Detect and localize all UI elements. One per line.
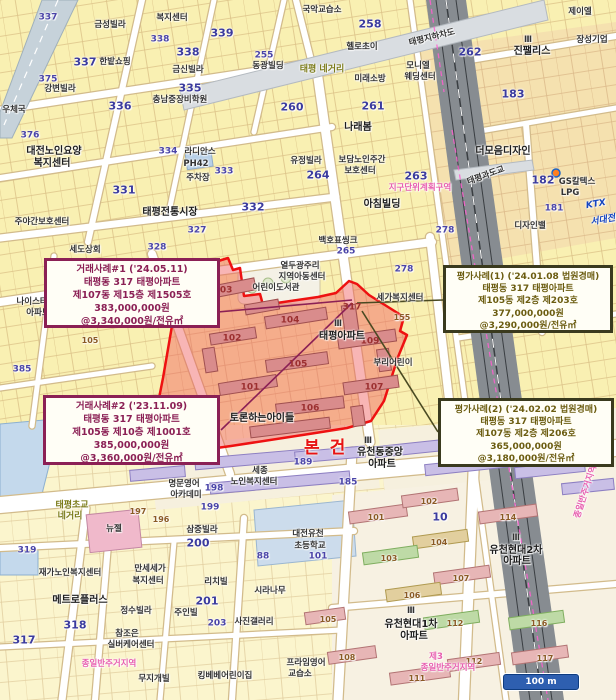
- callout-line: 태평동 317 태평아파트: [443, 416, 609, 428]
- callout-line: 377,000,000원: [448, 308, 608, 320]
- callout-line: 태평동 317 태평아파트: [49, 277, 215, 290]
- callout-sale-1: 거래사례#1 ('24.05.11) 태평동 317 태평아파트 제107동 제…: [44, 258, 220, 328]
- callout-line: 태평동 317 태평아파트: [448, 283, 608, 295]
- callout-sale-2: 거래사례#2 ('23.11.09) 태평동 317 태평아파트 제105동 제…: [43, 395, 220, 465]
- map-screenshot: 금성빌라337337338338339335336375강변빌라금신빌라한밭쇼핑…: [0, 0, 616, 700]
- scale-bar: 100 m: [503, 674, 579, 690]
- subject-label: 본건: [304, 433, 355, 458]
- callout-line: @3,290,000원/전유㎡: [448, 320, 608, 332]
- callout-appraisal-2: 평가사례(2) ('24.02.02 법원경매) 태평동 317 태평아파트 제…: [438, 398, 614, 467]
- callout-line: 383,000,000원: [49, 303, 215, 316]
- callout-line: @3,360,000원/전유㎡: [48, 453, 215, 466]
- callout-line: 태평동 317 태평아파트: [48, 414, 215, 427]
- callout-line: 거래사례#1 ('24.05.11): [49, 264, 215, 277]
- callout-line: 제107동 제2층 제206호: [443, 428, 609, 440]
- gs-station-icon: [552, 169, 560, 177]
- callout-line: 제105동 제2층 제203호: [448, 295, 608, 307]
- callout-line: 평가사례(1) ('24.01.08 법원경매): [448, 271, 608, 283]
- callout-line: 제107동 제15층 제1505호: [49, 290, 215, 303]
- map-canvas[interactable]: [0, 0, 616, 700]
- callout-line: 평가사례(2) ('24.02.02 법원경매): [443, 404, 609, 416]
- callout-line: 385,000,000원: [48, 440, 215, 453]
- callout-line: 제105동 제10층 제1001호: [48, 427, 215, 440]
- callout-line: @3,180,000원/전유㎡: [443, 453, 609, 465]
- callout-appraisal-1: 평가사례(1) ('24.01.08 법원경매) 태평동 317 태평아파트 제…: [443, 265, 613, 333]
- callout-line: 거래사례#2 ('23.11.09): [48, 401, 215, 414]
- callout-line: @3,340,000원/전유㎡: [49, 316, 215, 329]
- callout-line: 365,000,000원: [443, 441, 609, 453]
